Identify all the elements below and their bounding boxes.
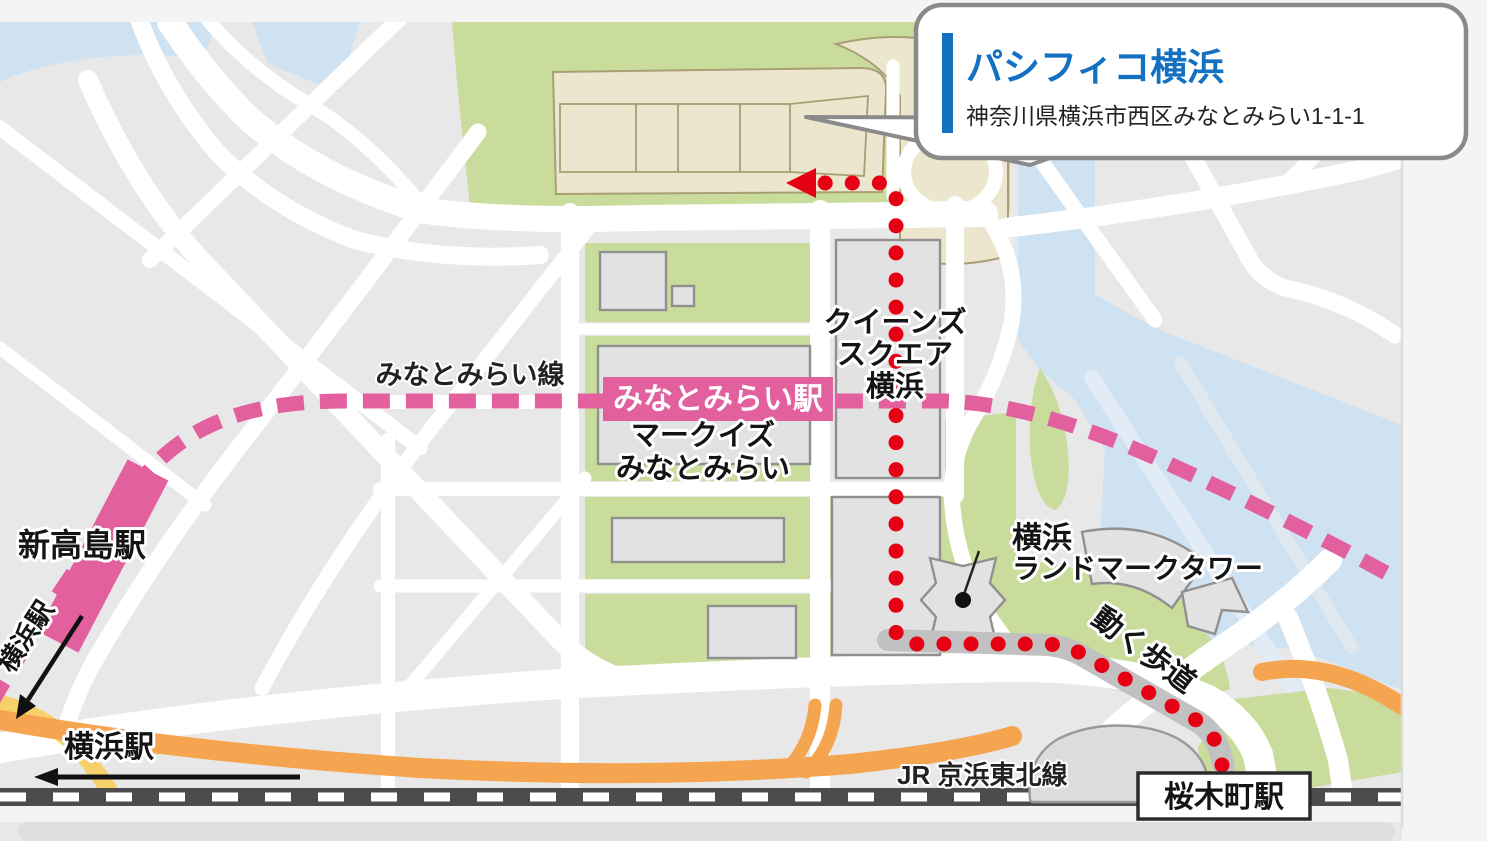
jr-line-label: JR 京浜東北線 [897,760,1067,790]
svg-text:横浜: 横浜 [1012,522,1072,555]
svg-text:クイーンズ: クイーンズ [824,305,967,339]
landmark-dot-icon [955,592,971,608]
svg-text:横浜: 横浜 [866,370,924,403]
svg-text:ランドマークタワー: ランドマークタワー [1012,553,1263,584]
callout-address: 神奈川県横浜市西区みなとみらい1-1-1 [966,103,1365,129]
svg-text:マークイズ: マークイズ [631,418,775,452]
to-yokohama-bottom-label: 横浜駅 [64,731,154,764]
access-map: みなとみらい駅 桜木町駅 みなとみらい線 新高島駅 横浜駅 横浜駅 クイーンズ … [0,0,1487,841]
minatomirai-station-label: みなとみらい駅 [613,383,823,416]
shintakashima-station-label: 新高島駅 [18,527,146,563]
svg-text:スクエア: スクエア [837,338,953,371]
markis-label: マークイズ みなとみらい [616,418,790,485]
svg-text:みなとみらい: みなとみらい [616,453,790,485]
minatomirai-line-label: みなとみらい線 [376,359,565,390]
sakuragicho-station-label: 桜木町駅 [1164,781,1284,814]
minatomirai-station-box: みなとみらい駅 [603,377,833,421]
map-right-margin [1402,158,1487,841]
access-map-page: みなとみらい駅 桜木町駅 みなとみらい線 新高島駅 横浜駅 横浜駅 クイーンズ … [0,0,1487,841]
sakuragicho-station-box: 桜木町駅 [1138,773,1310,819]
callout-accent-bar [942,33,953,133]
callout-title: パシフィコ横浜 [966,47,1224,88]
